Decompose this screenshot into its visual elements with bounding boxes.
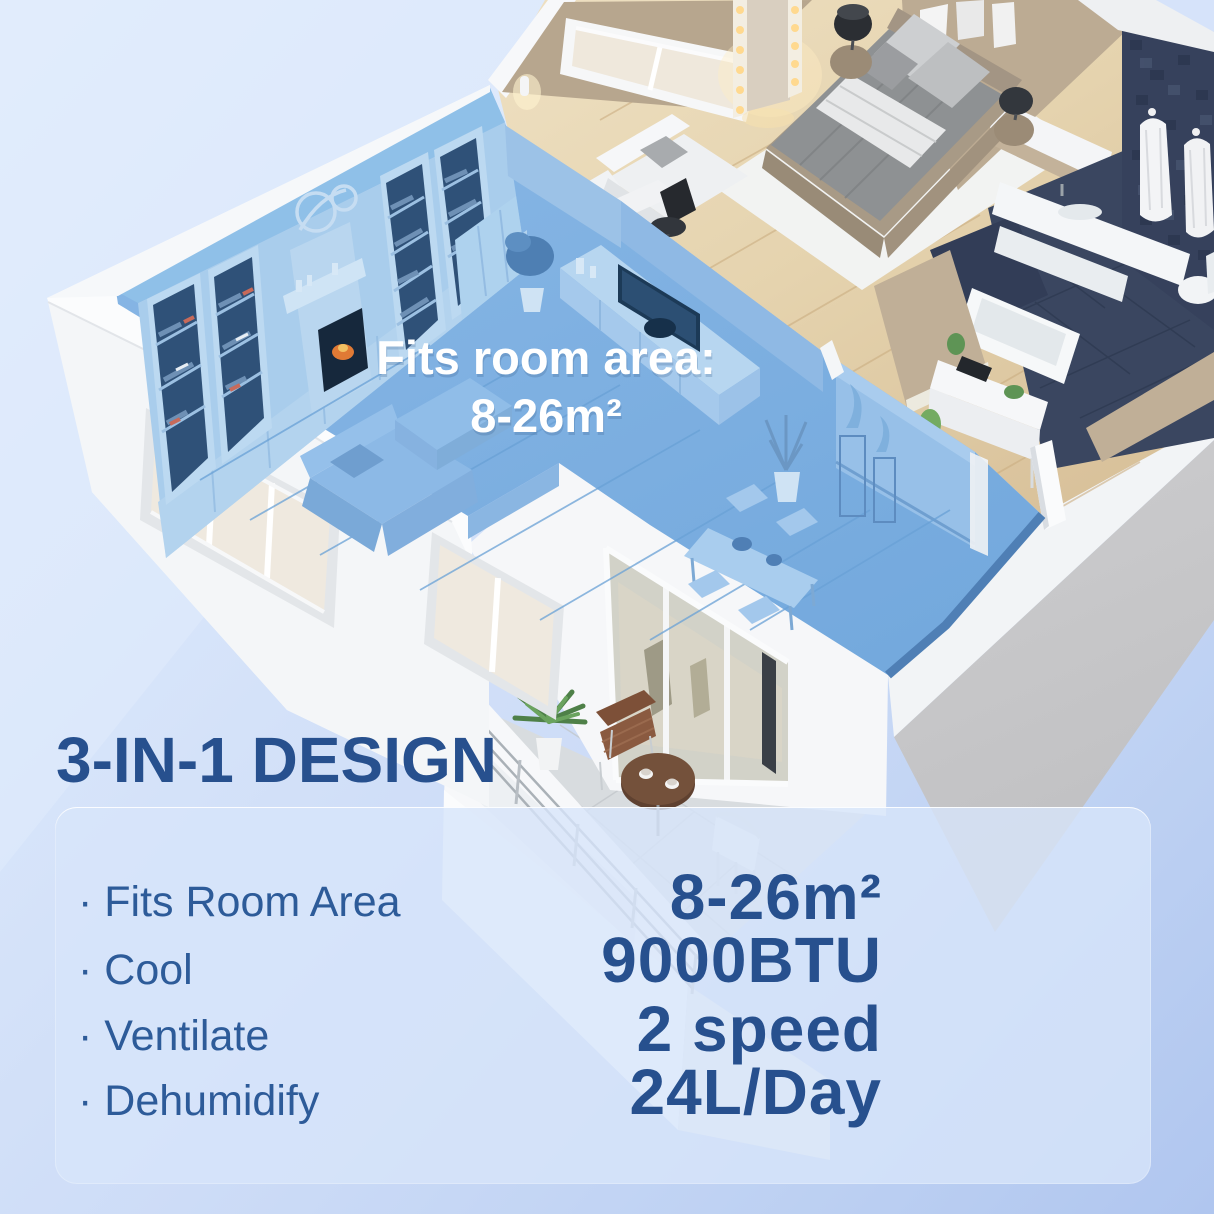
svg-text:Fits room area:: Fits room area: <box>376 331 716 384</box>
svg-text:8-26m²: 8-26m² <box>470 389 622 442</box>
